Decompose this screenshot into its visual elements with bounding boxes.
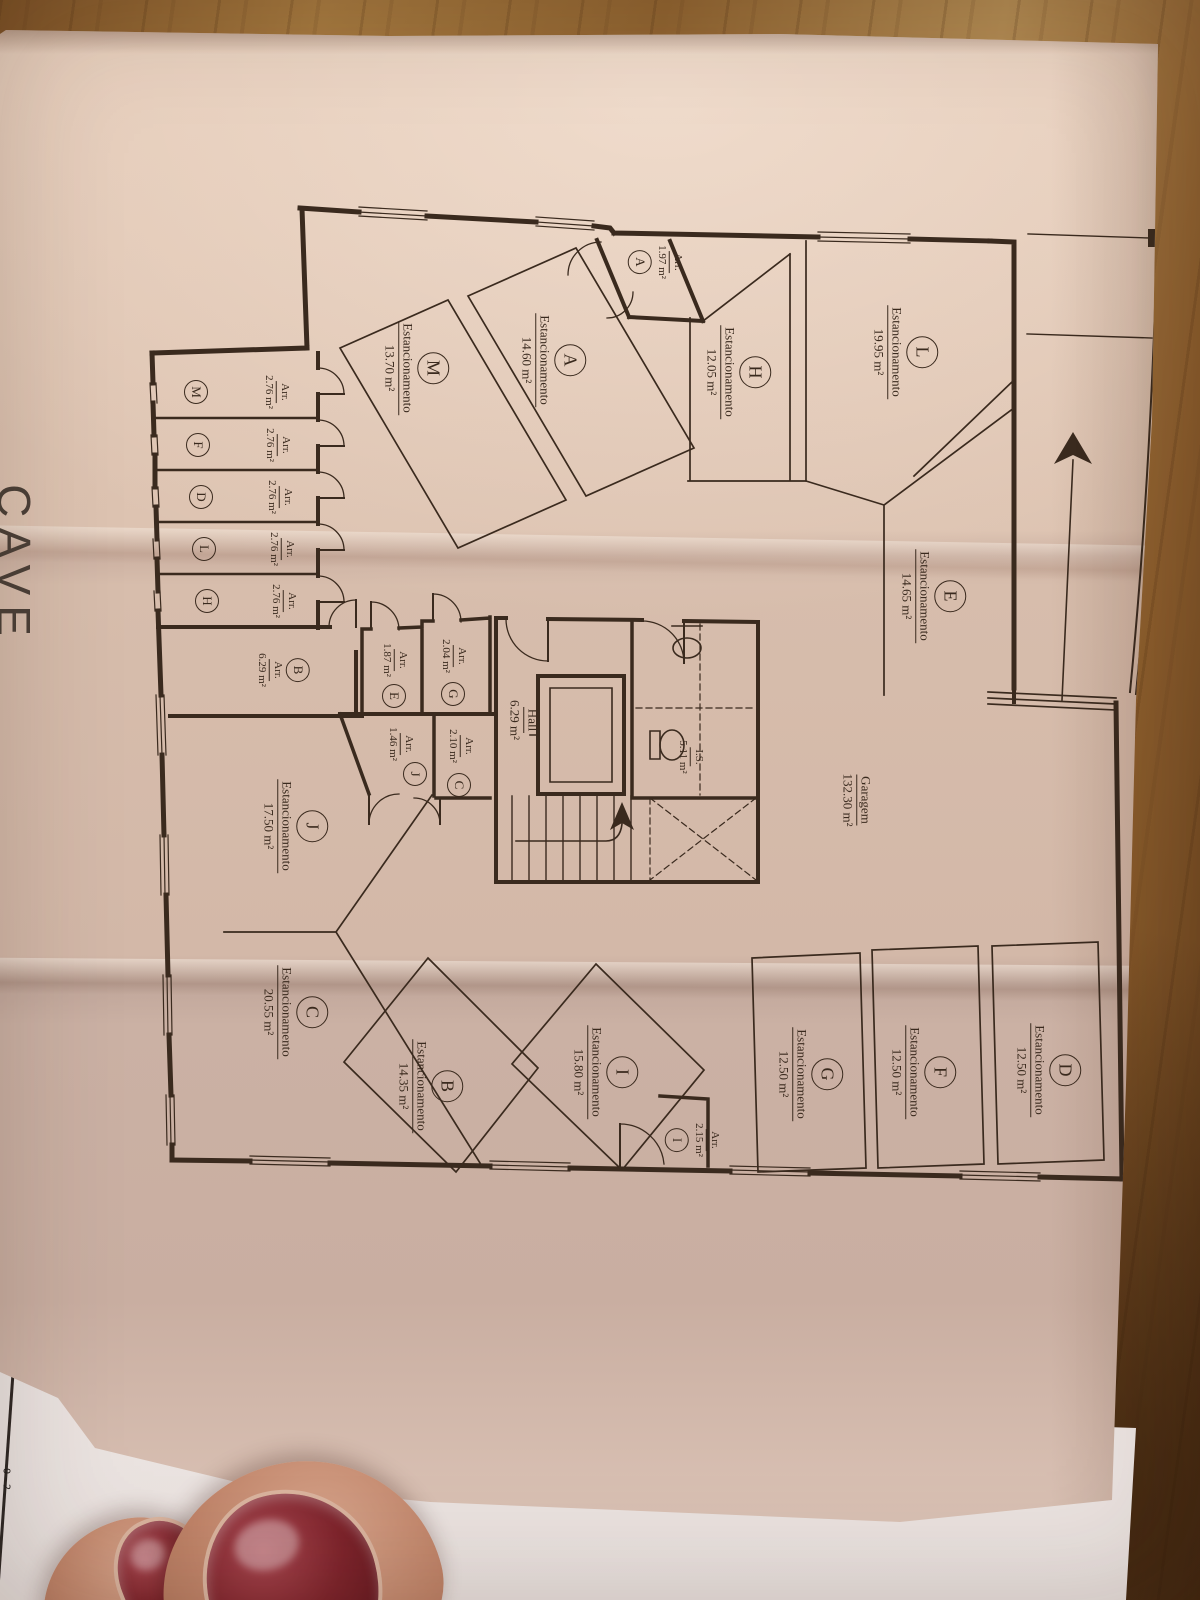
stall-i-title: Estancionamento xyxy=(587,1025,604,1119)
arr-e-area: 1.87 m² xyxy=(379,643,394,677)
arr-c-title: Arr. xyxy=(460,735,475,756)
label-arr-j-circle: J xyxy=(401,762,429,786)
nail-gloss xyxy=(126,1534,170,1576)
arr-g-title: Arr. xyxy=(453,645,468,666)
arr-a-area: 1.97 m² xyxy=(654,245,669,279)
stall-b-circle: B xyxy=(431,1070,463,1102)
stall-e-area: 14.65 m² xyxy=(898,573,915,620)
label-is: I.S.5.11 m² xyxy=(675,740,705,773)
stall-c-title: Estancionamento xyxy=(277,965,294,1059)
storage-d-title: Arr. xyxy=(279,486,294,507)
stall-h-area: 12.05 m² xyxy=(703,349,720,396)
room-labels-layer: LEstancionamento19.95 m²HEstancionamento… xyxy=(0,0,1200,1600)
arr-e-circle-circle: E xyxy=(382,684,406,708)
stall-j-circle: J xyxy=(296,810,328,842)
stall-e-title: Estancionamento xyxy=(915,549,932,643)
label-stall-g: GEstancionamento12.50 m² xyxy=(775,1027,846,1121)
storage-h-circle-circle: H xyxy=(195,589,219,613)
stall-g-circle: G xyxy=(811,1058,843,1090)
stall-l-title: Estancionamento xyxy=(887,305,904,399)
stall-i-area: 15.80 m² xyxy=(570,1049,587,1096)
nail-gloss xyxy=(230,1513,305,1577)
stall-g-title: Estancionamento xyxy=(792,1027,809,1121)
stall-g-area: 12.50 m² xyxy=(775,1051,792,1098)
label-stall-b: BEstancionamento14.35 m² xyxy=(395,1039,466,1133)
stall-d-area: 12.50 m² xyxy=(1013,1047,1030,1094)
is-title: I.S. xyxy=(690,747,705,766)
arr-c-circle-circle: C xyxy=(447,773,471,797)
stall-m-area: 13.70 m² xyxy=(381,345,398,392)
label-stall-c: CEstancionamento20.55 m² xyxy=(260,965,331,1059)
arr-g-area: 2.04 m² xyxy=(438,639,453,673)
arr-a-circle: A xyxy=(628,250,652,274)
arr-j-circle-circle: J xyxy=(403,762,427,786)
label-stall-e: EEstancionamento14.65 m² xyxy=(898,549,969,643)
label-arr-c: Arr.2.10 m² xyxy=(445,729,475,763)
label-stall-a: AEstancionamento14.60 m² xyxy=(518,313,589,407)
label-arr-c-circle: C xyxy=(445,773,473,797)
label-stall-h: HEstancionamento12.05 m² xyxy=(703,325,774,419)
stall-c-area: 20.55 m² xyxy=(260,989,277,1036)
label-stall-j: JEstancionamento17.50 m² xyxy=(260,779,331,873)
stall-b-area: 14.35 m² xyxy=(395,1063,412,1110)
label-arr-g: Arr.2.04 m² xyxy=(438,639,468,673)
label-stall-d: DEstancionamento12.50 m² xyxy=(1013,1023,1084,1117)
storage-h-area: 2.76 m² xyxy=(268,584,283,618)
arr-c-area: 2.10 m² xyxy=(445,729,460,763)
storage-m-title: Arr. xyxy=(276,381,291,402)
label-arr-j: Arr.1.46 m² xyxy=(385,727,415,761)
storage-m-circle-circle: M xyxy=(184,380,208,404)
stall-a-area: 14.60 m² xyxy=(518,337,535,384)
label-arr-e-circle: E xyxy=(380,684,408,708)
stall-e-circle: E xyxy=(934,580,966,612)
arr-j-title: Arr. xyxy=(400,733,415,754)
storage-m-area: 2.76 m² xyxy=(261,375,276,409)
garagem-title: Garagem xyxy=(856,774,873,826)
arr-g-circle-circle: G xyxy=(441,682,465,706)
arr-a-title: Arr. xyxy=(669,251,684,272)
stall-f-circle: F xyxy=(924,1056,956,1088)
label-stall-f: FEstancionamento12.50 m² xyxy=(888,1025,959,1119)
under-sheet-edge-text: O-2 xyxy=(1,1468,12,1492)
label-storage-l: Arr.2.76 m² xyxy=(266,532,296,566)
stall-m-title: Estancionamento xyxy=(398,321,415,415)
storage-f-title: Arr. xyxy=(277,434,292,455)
stall-h-circle: H xyxy=(739,356,771,388)
label-hall: Hall6.29 m² xyxy=(506,700,541,740)
label-storage-l-circle: L xyxy=(190,537,218,561)
is-area: 5.11 m² xyxy=(675,740,690,773)
label-arr-a: Arr.1.97 m²A xyxy=(626,245,684,279)
stall-c-circle: C xyxy=(296,996,328,1028)
label-storage-h-circle: H xyxy=(193,589,221,613)
label-storage-m: Arr.2.76 m² xyxy=(261,375,291,409)
label-storage-m-circle: M xyxy=(182,380,210,404)
stall-a-title: Estancionamento xyxy=(535,313,552,407)
stall-i-circle: I xyxy=(606,1056,638,1088)
stall-l-area: 19.95 m² xyxy=(870,329,887,376)
storage-f-area: 2.76 m² xyxy=(262,428,277,462)
label-garagem: Garagem132.30 m² xyxy=(839,773,874,826)
hall-area: 6.29 m² xyxy=(506,700,523,740)
label-storage-d-circle: D xyxy=(187,485,215,509)
storage-d-area: 2.76 m² xyxy=(264,480,279,514)
arr-i-area: 2.15 m² xyxy=(691,1123,706,1157)
photo-of-floorplan: O-2 CAVE xyxy=(0,0,1200,1600)
label-storage-d: Arr.2.76 m² xyxy=(264,480,294,514)
storage-f-circle-circle: F xyxy=(186,433,210,457)
stall-j-title: Estancionamento xyxy=(277,779,294,873)
stall-b-title: Estancionamento xyxy=(412,1039,429,1133)
arr-i-circle: I xyxy=(665,1128,689,1152)
stall-d-circle: D xyxy=(1049,1054,1081,1086)
stall-d-title: Estancionamento xyxy=(1030,1023,1047,1117)
label-arr-e: Arr.1.87 m² xyxy=(379,643,409,677)
arr-b-circle: B xyxy=(286,658,310,682)
stall-m-circle: M xyxy=(417,352,449,384)
garagem-area: 132.30 m² xyxy=(839,773,856,826)
arr-b-area: 6.29 m² xyxy=(254,653,269,687)
stall-l-circle: L xyxy=(906,336,938,368)
label-stall-l: LEstancionamento19.95 m² xyxy=(870,305,941,399)
storage-d-circle-circle: D xyxy=(189,485,213,509)
label-arr-i: Arr.2.15 m²I xyxy=(663,1123,721,1157)
hall-title: Hall xyxy=(523,707,540,733)
label-storage-f-circle: F xyxy=(184,433,212,457)
arr-b-title: Arr. xyxy=(269,659,284,680)
storage-h-title: Arr. xyxy=(283,590,298,611)
label-arr-g-circle: G xyxy=(439,682,467,706)
storage-l-circle-circle: L xyxy=(192,537,216,561)
stall-f-title: Estancionamento xyxy=(905,1025,922,1119)
stall-h-title: Estancionamento xyxy=(720,325,737,419)
label-storage-h: Arr.2.76 m² xyxy=(268,584,298,618)
arr-e-title: Arr. xyxy=(394,649,409,670)
floorplan-sheet: CAVE xyxy=(0,0,1200,1600)
arr-j-area: 1.46 m² xyxy=(385,727,400,761)
stall-a-circle: A xyxy=(554,344,586,376)
storage-l-area: 2.76 m² xyxy=(266,532,281,566)
arr-i-title: Arr. xyxy=(706,1129,721,1150)
label-stall-m: MEstancionamento13.70 m² xyxy=(381,321,452,415)
storage-l-title: Arr. xyxy=(281,538,296,559)
label-storage-f: Arr.2.76 m² xyxy=(262,428,292,462)
stall-f-area: 12.50 m² xyxy=(888,1049,905,1096)
label-stall-i: IEstancionamento15.80 m² xyxy=(570,1025,641,1119)
label-arr-b: BArr.6.29 m² xyxy=(254,653,312,687)
stall-j-area: 17.50 m² xyxy=(260,803,277,850)
